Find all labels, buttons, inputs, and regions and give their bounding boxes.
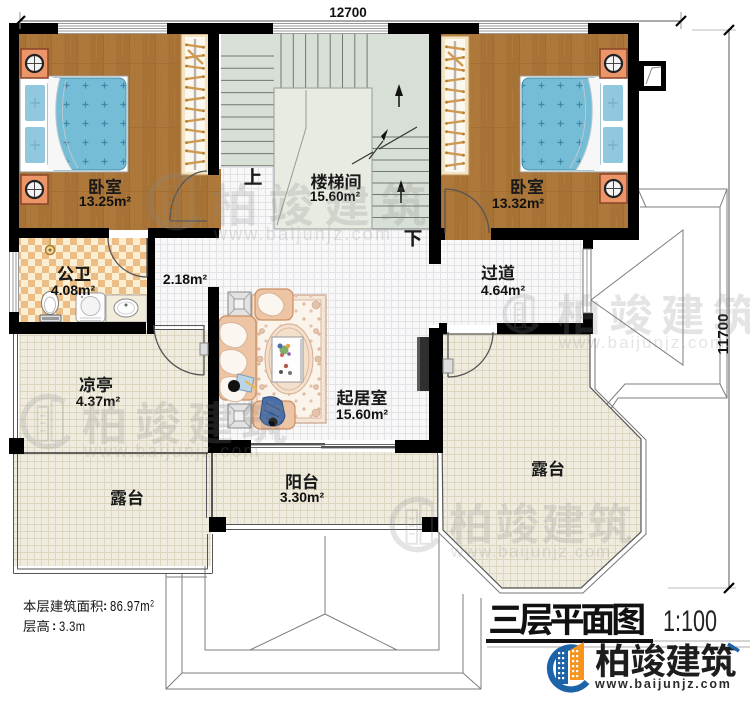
svg-text:www.baijunjz.com: www.baijunjz.com [83,441,261,461]
svg-text:1:100: 1:100 [663,603,717,637]
svg-text:13.32m²: 13.32m² [492,195,544,211]
svg-text:3.30m²: 3.30m² [280,489,325,505]
svg-text:13.25m²: 13.25m² [79,193,131,209]
svg-text:15.60m²: 15.60m² [336,406,388,422]
svg-text:86.97m2: 86.97m2 [110,598,154,615]
svg-text:2.18m²: 2.18m² [163,271,208,287]
svg-text:www.baijunjz.com: www.baijunjz.com [594,677,732,691]
svg-text:www.baijunjz.com: www.baijunjz.com [213,224,392,244]
svg-text:3.3m: 3.3m [59,619,85,634]
svg-text:www.baijunjz.com: www.baijunjz.com [450,542,612,561]
svg-text:www.baijunjz.com: www.baijunjz.com [558,333,726,352]
svg-text:12700: 12700 [329,5,367,20]
svg-text::: : [103,598,107,613]
svg-text::: : [52,618,56,633]
svg-text:4.08m²: 4.08m² [51,282,96,298]
